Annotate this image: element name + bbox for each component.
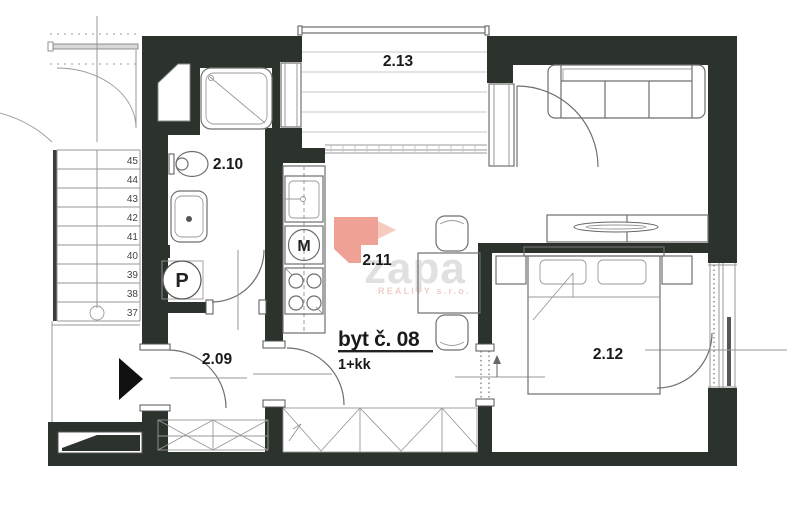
room-label-hall: 2.09 [202,351,233,368]
stair-number: 41 [127,232,139,243]
stair-number: 43 [127,194,139,205]
pillow [540,260,586,284]
floor-plan: zapa REALITY s.r.o. [0,0,787,511]
stair-number: 45 [127,156,139,167]
nightstand [662,256,692,284]
bedroom-window [708,263,737,388]
stair-number: 40 [127,251,139,262]
window-band [325,145,487,153]
passage-arrow [493,355,501,364]
tv-sideboard [547,215,708,242]
tv [574,222,658,232]
title-underline [338,350,433,352]
sink [171,191,207,242]
room-label-bedroom: 2.12 [593,346,623,363]
room-label-living: 2.11 [362,252,392,269]
floor-plan-drawing: zapa REALITY s.r.o. [0,0,787,511]
kitchen-unit-label: M [297,238,310,255]
nightstand [496,256,526,284]
blanket-fold [528,273,660,320]
wardrobe-hall [158,420,268,450]
watermark-logo-flag [378,221,396,239]
bed [496,247,692,394]
washer-label: P [175,270,188,292]
stair-number: 37 [127,308,139,319]
railing-cap [485,26,489,35]
railing-cap [298,26,302,35]
stair-number: 39 [127,270,139,281]
door-arc [0,113,52,142]
watermark: zapa REALITY s.r.o. [334,217,471,296]
watermark-subtitle-text: REALITY s.r.o. [378,286,471,296]
kitchen-sink [283,176,323,222]
room-label-bathroom: 2.10 [213,156,243,173]
balcony-deck [298,26,489,150]
room-label-balcony: 2.13 [383,53,414,70]
balcony-railing [302,27,485,33]
chair [436,315,468,350]
stair-number: 42 [127,213,139,224]
unit-title: byt č. 08 [338,328,420,351]
shower [201,68,272,129]
hall-door-arc [287,348,344,405]
pillow [598,260,646,284]
stair-numbers: 45 44 43 42 41 40 39 38 37 [127,156,139,319]
toilet [169,152,208,177]
door-leaf [727,317,731,386]
bedroom-door-arc [657,333,712,388]
annex [58,432,142,453]
sofa [548,65,705,118]
bathroom-window [281,63,301,127]
balcony-door-frame [489,84,514,166]
corridor [0,16,138,142]
stair-number: 44 [127,175,139,186]
balcony-door-arc [517,86,598,167]
wardrobe-living [283,408,477,452]
unit-title-block: byt č. 08 1+kk [338,328,433,373]
entrance-arrow [119,358,143,400]
stair-number: 38 [127,289,139,300]
kitchen: M [283,166,325,333]
stair-railing [53,150,57,321]
unit-layout: 1+kk [338,357,372,373]
washing-machine: P [162,261,203,299]
